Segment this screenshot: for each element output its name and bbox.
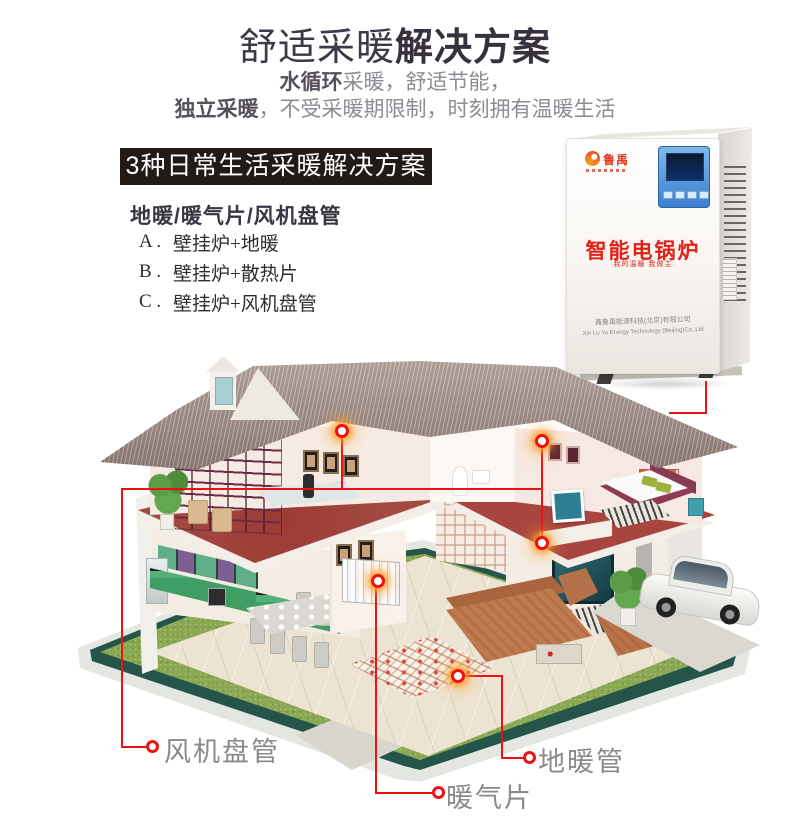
- picture: [307, 455, 315, 467]
- solution-item-a: A . 壁挂炉+地暖: [139, 227, 317, 257]
- callout-line-radiator-horizontal: [375, 792, 435, 794]
- callout-ring-radiator: [432, 786, 445, 799]
- bathroom-sink: [452, 466, 468, 496]
- dormer-window: [215, 377, 233, 405]
- plant-pot: [160, 514, 174, 530]
- study-picture-frame: [323, 452, 339, 474]
- study-picture-frame: [303, 450, 319, 472]
- callout-label-floor-pipe: 地暖管: [538, 740, 625, 779]
- boiler-panel-button: [663, 191, 673, 199]
- promo-page: 舒适采暖解决方案 水循环采暖，舒适节能， 独立采暖，不受采暖期限制，时刻拥有温暖…: [0, 0, 790, 830]
- boiler-panel-button: [675, 191, 685, 199]
- page-title-light: 舒适采暖: [239, 27, 395, 69]
- subtitle-1-emphasis: 水循环: [280, 71, 343, 94]
- boiler-display-screen: [666, 153, 704, 181]
- page-title: 舒适采暖解决方案: [0, 16, 790, 71]
- dormer-roof: [206, 356, 240, 372]
- bathroom-fixture: [472, 470, 490, 484]
- solutions-banner: 3种日常生活采暖解决方案: [120, 148, 432, 185]
- dining-chair: [292, 636, 307, 662]
- solutions-list: A . 壁挂炉+地暖 B . 壁挂炉+散热片 C . 壁挂炉+风机盘管: [139, 227, 317, 317]
- solutions-heading: 地暖/暖气片/风机盘管: [130, 200, 342, 230]
- callout-line-bedroom-tv: [541, 441, 543, 545]
- callout-label-radiator: 暖气片: [446, 776, 533, 815]
- potted-plant: [148, 468, 188, 518]
- callout-ring-fan-coil: [146, 740, 159, 753]
- boiler-tagline: ·我的温暖 我做主·: [566, 259, 720, 269]
- nightstand: [688, 498, 704, 516]
- solution-item-c-letter: C .: [139, 291, 173, 313]
- heat-point-marker-living: [535, 536, 549, 550]
- subtitle-2-rest: ，不受采暖期限制，时刻拥有温暖生活: [259, 98, 616, 121]
- callout-line-left-vertical: [121, 488, 123, 748]
- subtitle-1-rest: 采暖，舒适节能，: [343, 71, 511, 94]
- solution-item-c: C . 壁挂炉+风机盘管: [139, 287, 317, 317]
- solution-item-b: B . 壁挂炉+散热片: [139, 257, 317, 287]
- dining-chair: [314, 642, 329, 668]
- solution-item-b-letter: B .: [139, 261, 173, 283]
- boiler-panel-button: [699, 191, 709, 199]
- oven: [208, 588, 226, 606]
- heat-point-marker-bedroom: [535, 434, 549, 448]
- picture: [362, 545, 370, 557]
- callout-ring-floor-pipe: [523, 751, 536, 764]
- callout-line-study-marker: [341, 431, 343, 490]
- boiler-connector-vertical: [705, 381, 707, 414]
- page-title-bold: 解决方案: [395, 27, 551, 69]
- solution-item-a-letter: A .: [139, 231, 173, 253]
- solution-item-b-text: 壁挂炉+散热片: [173, 259, 298, 286]
- callout-line-main-horizontal: [121, 488, 542, 490]
- brand-logo-tagline-marks: [586, 169, 628, 172]
- boiler-panel-button: [687, 191, 697, 199]
- subtitle-line-1: 水循环采暖，舒适节能，: [0, 66, 790, 96]
- leaning-painting: [551, 489, 585, 523]
- bathroom-wall: [430, 425, 516, 502]
- office-chair: [303, 474, 314, 498]
- bedroom-picture-frame: [566, 446, 580, 464]
- bedroom-picture-frame: [548, 443, 562, 461]
- callout-line-floor-pipe-2: [501, 675, 503, 759]
- heat-point-marker-radiator: [371, 574, 385, 588]
- brand-logo-text: 鲁禹: [603, 151, 629, 168]
- solution-item-a-text: 壁挂炉+地暖: [173, 229, 279, 256]
- picture: [327, 457, 335, 469]
- solution-item-c-text: 壁挂炉+风机盘管: [173, 289, 317, 316]
- subtitle-line-2: 独立采暖，不受采暖期限制，时刻拥有温暖生活: [0, 93, 790, 123]
- heat-point-marker-floor: [451, 669, 465, 683]
- boiler-spec-label: [722, 258, 737, 300]
- study-picture-frame: [343, 455, 359, 477]
- callout-line-radiator-vertical: [375, 581, 377, 794]
- callout-label-fan-coil: 风机盘管: [164, 730, 280, 769]
- coffee-table: [536, 644, 582, 664]
- boiler-connector-horizontal: [669, 412, 707, 414]
- picture: [347, 460, 355, 472]
- plant-pot: [620, 608, 636, 626]
- subtitle-2-emphasis: 独立采暖: [175, 98, 259, 121]
- brand-logo-icon: [585, 151, 600, 166]
- study-armchair: [212, 508, 232, 532]
- study-armchair: [188, 500, 208, 524]
- heat-point-marker-study: [335, 424, 349, 438]
